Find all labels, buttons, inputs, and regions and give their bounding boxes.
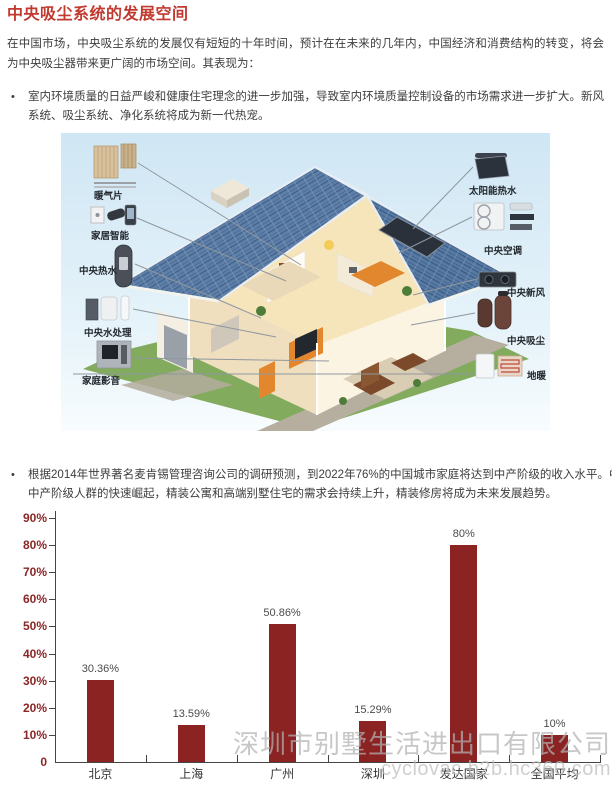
y-tick-mark [49,708,55,709]
bar [359,721,386,762]
x-category-label: 发达国家 [418,767,509,782]
y-tick-label: 20% [15,700,47,716]
y-tick-label: 30% [15,673,47,689]
y-tick-label: 40% [15,646,47,662]
x-tick-mark [418,755,419,762]
callout-label-fresh-air: 中央新风 [507,287,546,299]
y-tick-mark [49,518,55,519]
y-axis-line [55,511,56,762]
central-hot-water-icon [115,245,132,287]
y-tick-label: 50% [15,618,47,634]
y-tick-label: 90% [15,510,47,526]
x-category-label: 深圳 [328,767,419,782]
y-tick-label: 70% [15,564,47,580]
bar [450,545,477,762]
bar [87,680,114,762]
y-tick-label: 10% [15,727,47,743]
bar-chart: 90%80%70%60%50%40%30%20%10%030.36%北京13.5… [15,508,601,788]
x-tick-mark [237,755,238,762]
page-title: 中央吸尘系统的发展空间 [7,5,612,25]
y-tick-label: 0 [15,754,47,770]
x-tick-mark [328,755,329,762]
bar-value-label: 15.29% [328,703,419,717]
y-tick-mark [49,572,55,573]
bullet-marker: • [11,88,15,107]
bullet-item-2: • 根据2014年世界著名麦肯锡管理咨询公司的调研预测，到2022年76%的中国… [0,466,612,504]
y-tick-mark [49,599,55,600]
central-ac-icon [474,203,534,230]
bar-value-label: 30.36% [55,662,146,676]
house-figure: 暖气片 家居智能 中央热水 中央水处理 [61,133,550,431]
y-tick-label: 60% [15,591,47,607]
bullet-item-1: • 室内环境质量的日益严峻和健康住宅理念的进一步加强，导致室内环境质量控制设备的… [0,88,604,126]
y-tick-label: 80% [15,537,47,553]
bar-value-label: 13.59% [146,707,237,721]
callout-label-smart-home: 家居智能 [91,230,130,242]
y-tick-mark [49,545,55,546]
x-category-label: 上海 [146,767,237,782]
bar-value-label: 80% [418,527,509,541]
callout-label-radiator: 暖气片 [94,190,123,202]
water-treatment-icon [86,296,129,320]
document-page: 中央吸尘系统的发展空间 在中国市场，中央吸尘系统的发展仅有短短的十年时间，预计在… [0,0,612,788]
bar [541,735,568,762]
bar-value-label: 50.86% [237,606,328,620]
x-tick-mark [146,755,147,762]
y-tick-mark [49,626,55,627]
x-axis-line [55,762,601,763]
callout-label-central-ac: 中央空调 [484,245,522,257]
callout-label-central-vacuum: 中央吸尘 [507,335,546,347]
bullet-text-2: 根据2014年世界著名麦肯锡管理咨询公司的调研预测，到2022年76%的中国城市… [28,469,612,500]
callout-label-solar-water-heater: 太阳能热水 [469,185,517,197]
solar-water-heater-icon [475,153,509,179]
callout-label-home-theater: 家庭影音 [82,375,121,387]
y-tick-mark [49,654,55,655]
bullet-marker: • [11,466,15,485]
bullet-text-1: 室内环境质量的日益严峻和健康住宅理念的进一步加强，导致室内环境质量控制设备的市场… [28,91,604,122]
callout-label-water-treatment: 中央水处理 [84,327,132,339]
home-theater-icon [97,341,131,368]
x-category-label: 广州 [237,767,328,782]
y-tick-mark [49,735,55,736]
bar-value-label: 10% [509,717,600,731]
x-category-label: 全国平均 [509,767,600,782]
x-category-label: 北京 [55,767,146,782]
house-cutaway-illustration: 暖气片 家居智能 中央热水 中央水处理 [61,133,550,431]
x-tick-mark [509,755,510,762]
callout-label-central-hot-water: 中央热水 [79,265,118,277]
intro-paragraph: 在中国市场，中央吸尘系统的发展仅有短短的十年时间，预计在在未来的几年内，中国经济… [7,34,604,74]
y-tick-mark [49,681,55,682]
callout-label-floor-heating: 地暖 [527,370,547,382]
floor-heating-icon [476,354,522,378]
bar [269,624,296,762]
bar [178,725,205,762]
fresh-air-icon [479,272,516,287]
x-tick-mark [600,755,601,762]
